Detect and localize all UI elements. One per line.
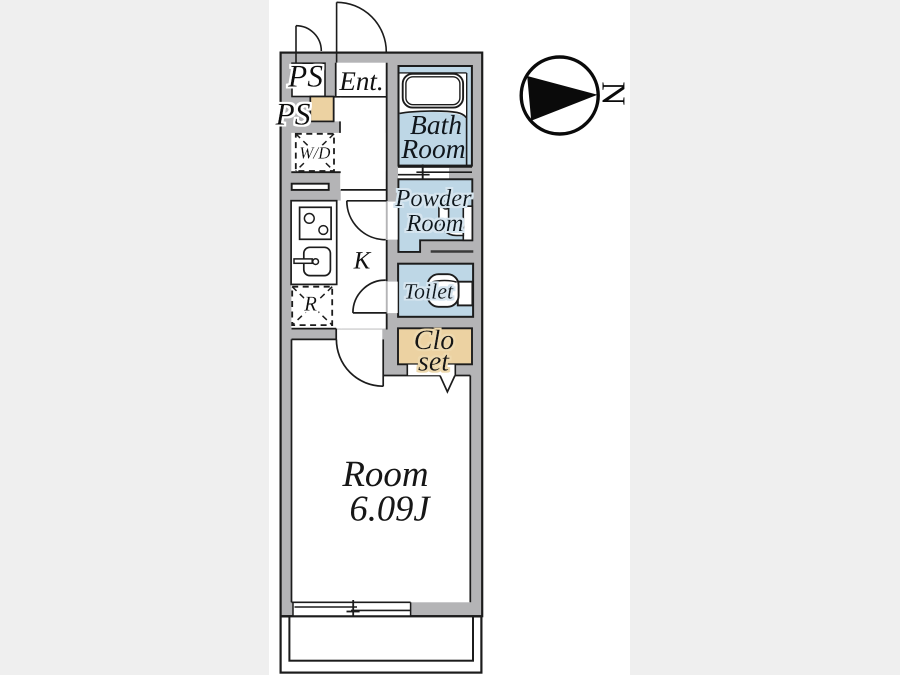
- svg-text:Room: Room: [405, 210, 463, 237]
- svg-text:Ent.: Ent.: [338, 66, 383, 96]
- svg-text:set: set: [418, 347, 450, 378]
- svg-text:Toilet: Toilet: [404, 279, 454, 304]
- svg-text:PS: PS: [287, 59, 323, 94]
- svg-text:N: N: [595, 81, 632, 105]
- svg-text:Powder: Powder: [394, 185, 472, 212]
- svg-text:K: K: [353, 248, 372, 275]
- svg-text:PS: PS: [275, 97, 311, 132]
- svg-text:6.09J: 6.09J: [349, 488, 431, 529]
- svg-text:R: R: [303, 292, 317, 316]
- svg-text:W/D: W/D: [299, 144, 331, 163]
- svg-text:Room: Room: [400, 133, 465, 164]
